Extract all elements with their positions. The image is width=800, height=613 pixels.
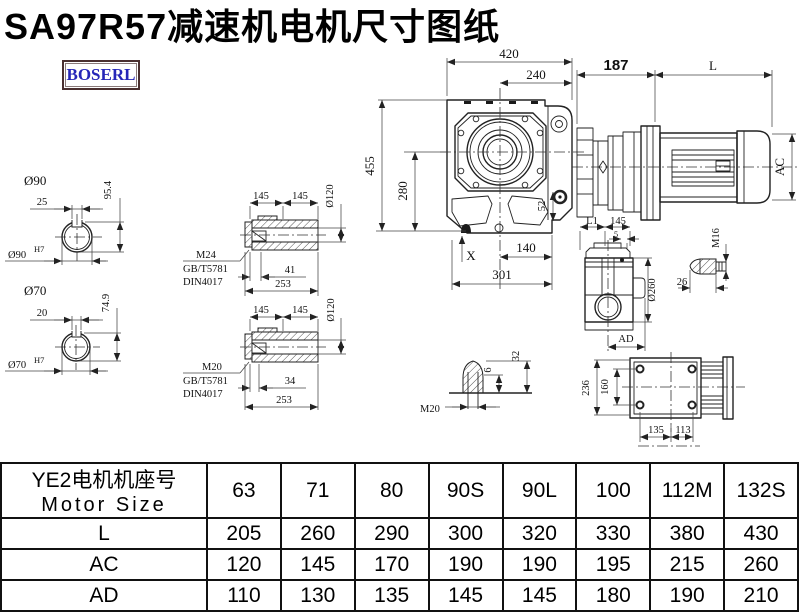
table-row: L 205 260 290 300 320 330 380 430 — [1, 518, 798, 549]
dim-stud-6: 6 — [483, 367, 494, 372]
dim-front-x: X — [466, 248, 476, 263]
dim-hollow1-bore: Ø120 — [325, 184, 336, 207]
table-cell: 320 — [503, 518, 577, 549]
gearbox-top-view: 236 160 135 113 — [581, 352, 745, 446]
label-hollow1-standard2: DIN4017 — [183, 277, 223, 288]
row-label-AD: AD — [1, 580, 207, 611]
dim-bolt-26: 26 — [677, 277, 688, 288]
dim-front-center-height: 280 — [395, 181, 410, 201]
table-cell: 260 — [724, 549, 798, 580]
dim-side-flange-diameter: Ø260 — [647, 278, 658, 301]
dim-sec70-key-width: 20 — [37, 308, 48, 319]
hollow-shaft-bottom: 145 145 Ø120 M20 GB/T5781 DIN4017 34 253 — [183, 298, 346, 410]
size-column-header: 90L — [503, 463, 577, 518]
dim-sec90-fit: Ø90 — [8, 250, 26, 261]
table-cell: 195 — [576, 549, 650, 580]
size-column-header: 100 — [576, 463, 650, 518]
size-column-header: 132S — [724, 463, 798, 518]
table-cell: 290 — [355, 518, 429, 549]
label-hollow2-standard1: GB/T5781 — [183, 376, 228, 387]
table-cell: 260 — [281, 518, 355, 549]
label-stud-thread: M20 — [420, 404, 440, 415]
dim-top-113: 113 — [675, 425, 690, 436]
dim-hollow2-length: 253 — [276, 395, 292, 406]
table-cell: 120 — [207, 549, 281, 580]
dim-side-l1: L1 — [586, 216, 598, 227]
table-row: AC 120 145 170 190 190 195 215 260 — [1, 549, 798, 580]
table-cell: 210 — [724, 580, 798, 611]
hollow-shaft-top: 145 145 Ø120 M24 GB/T5781 DIN4017 41 253 — [183, 184, 346, 296]
label-hollow1-standard1: GB/T5781 — [183, 264, 228, 275]
table-cell: 205 — [207, 518, 281, 549]
table-cell: 145 — [281, 549, 355, 580]
table-header-motor-size: YE2电机机座号 Motor Size — [1, 463, 207, 518]
dim-hollow1-length: 253 — [275, 279, 291, 290]
dim-sec90-fit-tolerance: H7 — [34, 244, 44, 254]
table-cell: 130 — [281, 580, 355, 611]
motor-size-table: YE2电机机座号 Motor Size 63 71 80 90S 90L 100… — [0, 462, 799, 612]
drawing-page: SA97R57减速机电机尺寸图纸 BOSERL — [0, 0, 800, 613]
dim-sec70-fit: Ø70 — [8, 360, 26, 371]
dim-hollow2-bore: Ø120 — [326, 298, 337, 321]
dim-top-236: 236 — [581, 380, 592, 396]
size-column-header: 71 — [281, 463, 355, 518]
dim-stud-32: 32 — [511, 351, 522, 362]
gearbox-side-view: L1 145 5 Ø260 AD — [580, 216, 658, 352]
table-cell: 110 — [207, 580, 281, 611]
table-cell: 190 — [650, 580, 724, 611]
dim-hollow1-thread-depth: 41 — [285, 265, 296, 276]
dim-hollow2-145a: 145 — [253, 305, 269, 316]
dim-front-52: 52 — [537, 201, 548, 212]
dim-hollow1-145b: 145 — [292, 191, 308, 202]
dim-motor-187: 187 — [603, 57, 628, 74]
dim-sec70-diameter: Ø70 — [24, 283, 46, 298]
table-row: YE2电机机座号 Motor Size 63 71 80 90S 90L 100… — [1, 463, 798, 518]
front-view: 420 240 455 280 52 X 140 301 — [362, 46, 584, 290]
dim-top-160: 160 — [600, 379, 611, 395]
bolt-detail: M16 26 — [677, 228, 728, 293]
table-cell: 215 — [650, 549, 724, 580]
table-header-en: Motor Size — [2, 494, 206, 517]
dim-front-center-width: 240 — [526, 67, 546, 82]
dim-sec90-key-width: 25 — [37, 197, 48, 208]
dim-hollow2-thread-depth: 34 — [285, 376, 296, 387]
label-hollow2-thread: M20 — [202, 362, 222, 373]
shaft-section-70: Ø70 20 74.9 Ø70 H7 — [5, 283, 121, 375]
row-label-AC: AC — [1, 549, 207, 580]
dim-front-top-width: 420 — [499, 46, 519, 61]
table-cell: 190 — [429, 549, 503, 580]
size-column-header: 63 — [207, 463, 281, 518]
dim-motor-diameter: AC — [772, 158, 787, 176]
table-cell: 300 — [429, 518, 503, 549]
dim-hollow1-145a: 145 — [253, 191, 269, 202]
table-cell: 135 — [355, 580, 429, 611]
table-cell: 180 — [576, 580, 650, 611]
table-cell: 330 — [576, 518, 650, 549]
table-header-cn: YE2电机机座号 — [2, 464, 206, 494]
dim-top-135: 135 — [648, 425, 664, 436]
dim-motor-length: L — [709, 58, 717, 73]
dim-sec70-fit-tolerance: H7 — [34, 355, 44, 365]
dim-side-ad: AD — [618, 334, 634, 345]
dim-side-5: 5 — [614, 229, 618, 239]
table-cell: 190 — [503, 549, 577, 580]
shaft-section-90: Ø90 25 95.4 Ø90 H7 — [5, 173, 124, 265]
dim-sec70-key-height: 74.9 — [101, 294, 112, 312]
size-column-header: 90S — [429, 463, 503, 518]
table-row: AD 110 130 135 145 145 180 190 210 — [1, 580, 798, 611]
dim-side-145: 145 — [610, 216, 626, 227]
dim-front-140: 140 — [516, 240, 536, 255]
table-cell: 380 — [650, 518, 724, 549]
technical-drawing: 420 240 455 280 52 X 140 301 — [0, 0, 800, 462]
size-column-header: 80 — [355, 463, 429, 518]
motor-side-view: 187 L AC — [572, 57, 798, 220]
size-column-header: 112M — [650, 463, 724, 518]
dim-front-301: 301 — [492, 267, 512, 282]
dim-sec90-diameter: Ø90 — [24, 173, 46, 188]
table-cell: 430 — [724, 518, 798, 549]
table-cell: 145 — [429, 580, 503, 611]
label-hollow1-thread: M24 — [196, 250, 217, 261]
dim-front-total-height: 455 — [362, 156, 377, 176]
row-label-L: L — [1, 518, 207, 549]
stud-detail: M20 6 32 — [420, 351, 532, 415]
label-hollow2-standard2: DIN4017 — [183, 389, 223, 400]
label-bolt-thread: M16 — [711, 228, 722, 248]
table-cell: 170 — [355, 549, 429, 580]
dim-sec90-key-height: 95.4 — [103, 180, 114, 199]
table-cell: 145 — [503, 580, 577, 611]
dim-hollow2-145b: 145 — [292, 305, 308, 316]
